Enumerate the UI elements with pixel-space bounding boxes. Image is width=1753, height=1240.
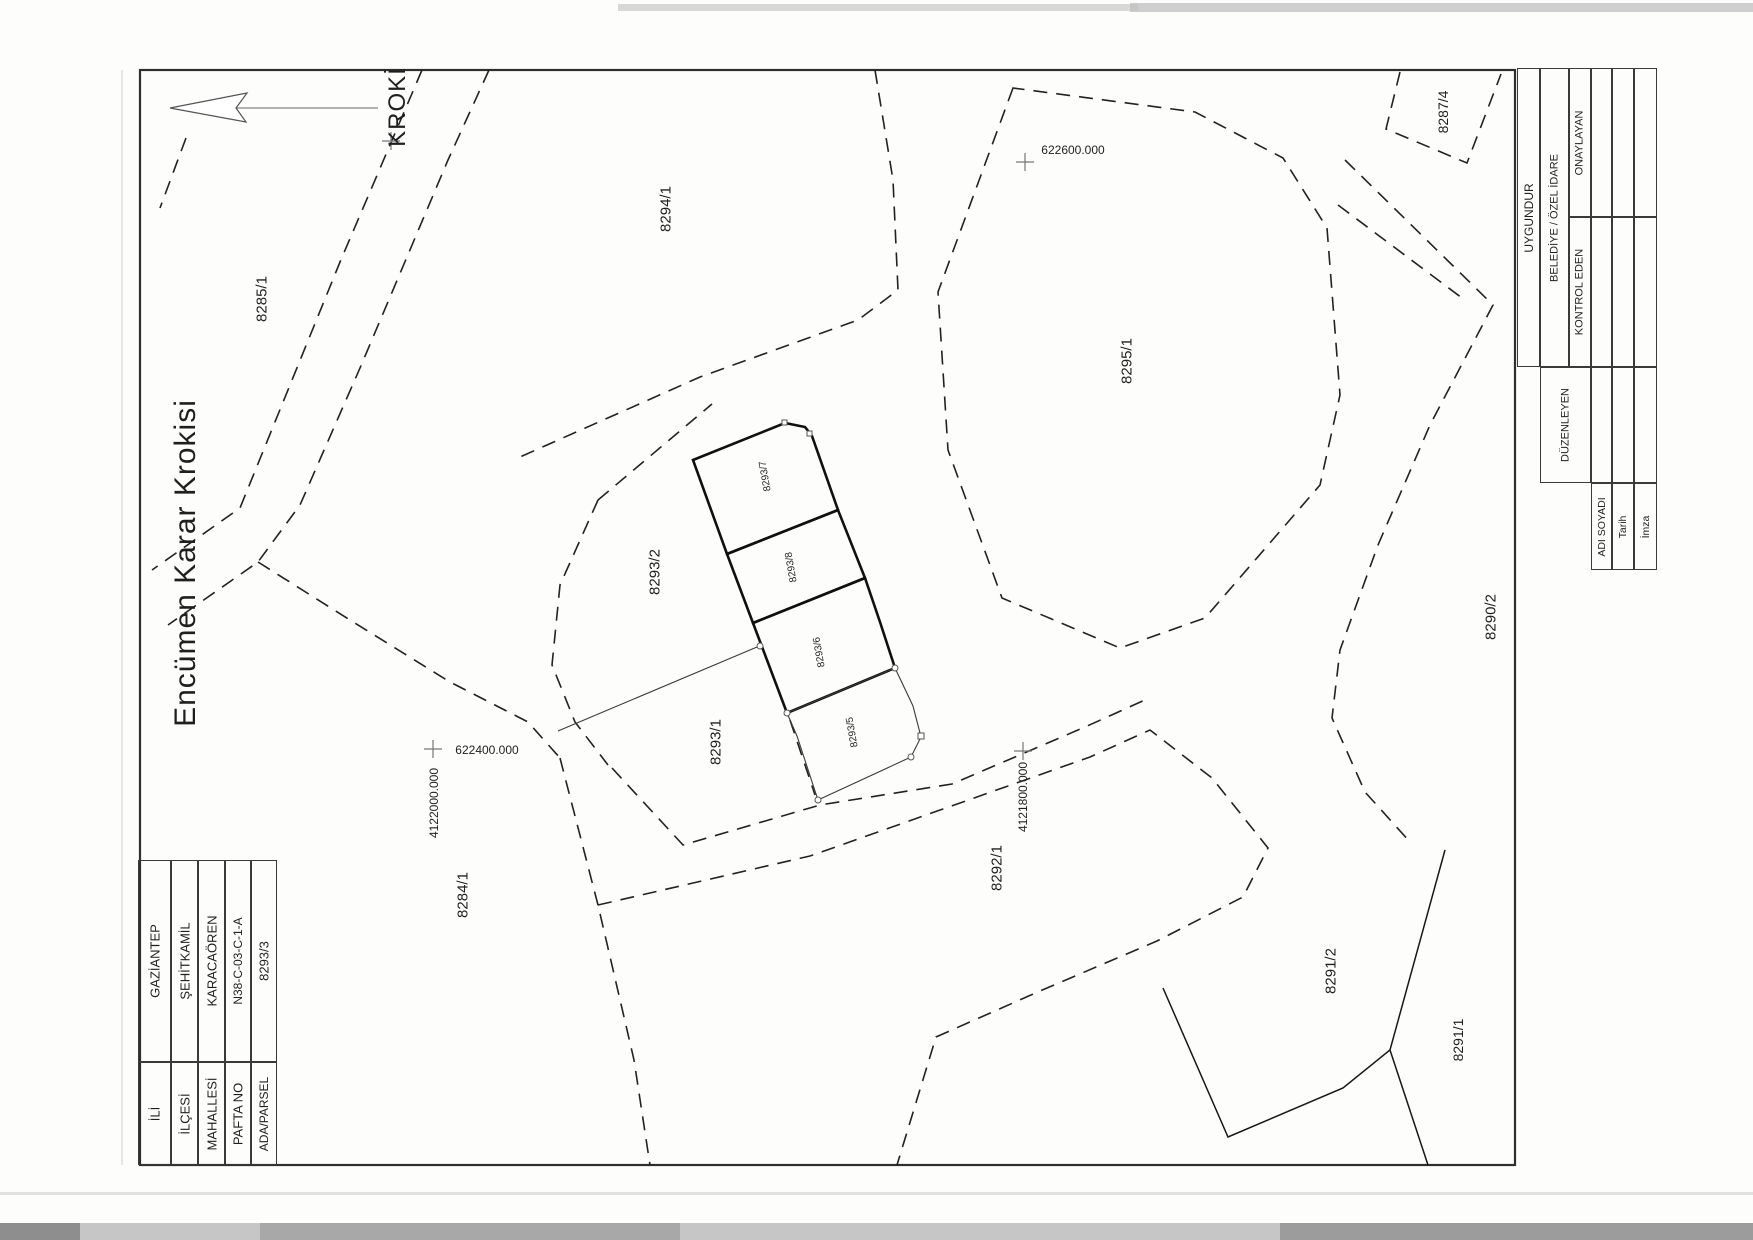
survey-point-marker bbox=[757, 643, 763, 649]
scanned-cadastral-sketch: Encümen Karar Krokisi KROKİ 8285/1 8294/… bbox=[0, 0, 1753, 1240]
scan-artifact bbox=[1130, 3, 1753, 12]
parcel-8291-1-boundary bbox=[1390, 1050, 1428, 1165]
road-boundary-northeast bbox=[1338, 205, 1462, 298]
parcel-8293-1-east-boundary bbox=[790, 720, 815, 795]
signature-cell-empty bbox=[1612, 217, 1634, 367]
parcel-label-8291-1: 8291/1 bbox=[1451, 1019, 1465, 1062]
road-boundary-topleft-corner bbox=[160, 138, 186, 208]
survey-point-marker bbox=[784, 710, 790, 716]
approval-role-duzenleyen: DÜZENLEYEN bbox=[1540, 367, 1591, 483]
scan-artifact bbox=[260, 1223, 680, 1240]
info-value-mahallesi: KARACAÖREN bbox=[198, 860, 225, 1062]
info-label-ada-parsel: ADA/PARSEL bbox=[251, 1062, 277, 1165]
parcel-label-8294-1: 8294/1 bbox=[659, 186, 674, 232]
parcel-label-8287-4: 8287/4 bbox=[1436, 91, 1450, 134]
scan-artifact bbox=[0, 1223, 80, 1240]
survey-point-marker bbox=[892, 665, 898, 671]
parcel-label-8285-1: 8285/1 bbox=[255, 276, 270, 322]
road-boundary-west bbox=[168, 70, 489, 625]
page-title: Encümen Karar Krokisi bbox=[171, 399, 201, 727]
info-label-mahallesi: MAHALLESİ bbox=[198, 1062, 225, 1165]
signature-cell-empty bbox=[1634, 217, 1657, 367]
parcel-8292-1-boundary bbox=[598, 730, 1268, 1165]
parcel-8294-1-boundary bbox=[520, 70, 898, 457]
survey-point-marker bbox=[908, 754, 914, 760]
parcel-label-8291-2: 8291/2 bbox=[1324, 948, 1339, 994]
parcel-label-8284-1: 8284/1 bbox=[456, 872, 471, 918]
signature-cell-empty bbox=[1634, 68, 1657, 217]
signature-cell-empty bbox=[1612, 68, 1634, 217]
scan-artifact bbox=[618, 4, 1138, 11]
scan-artifact bbox=[0, 1192, 1753, 1195]
signature-cell-empty bbox=[1612, 367, 1634, 483]
survey-point-marker bbox=[918, 733, 924, 739]
parcel-label-8292-1: 8292/1 bbox=[990, 845, 1005, 891]
scan-artifact bbox=[121, 70, 123, 1165]
survey-point-marker bbox=[807, 431, 812, 436]
grid-cross bbox=[1016, 153, 1034, 171]
grid-cross bbox=[1014, 742, 1032, 760]
signature-cell-empty bbox=[1591, 367, 1612, 483]
signature-cell-empty bbox=[1634, 367, 1657, 483]
survey-point-marker bbox=[782, 420, 787, 425]
parcel-8293-2-north-boundary bbox=[598, 404, 712, 500]
parcel-8284-1-north-boundary bbox=[258, 562, 560, 758]
info-value-ada-parsel: 8293/3 bbox=[251, 860, 277, 1062]
approval-row-tarih: Tarih bbox=[1612, 483, 1634, 570]
parcel-label-8293-1: 8293/1 bbox=[709, 719, 724, 765]
parcel-8293-block-west-boundary bbox=[552, 500, 608, 765]
info-value-ilcesi: ŞEHİTKAMİL bbox=[171, 860, 198, 1062]
info-label-ilcesi: İLÇESİ bbox=[171, 1062, 198, 1165]
parcel-label-8295-1: 8295/1 bbox=[1120, 338, 1135, 384]
info-value-pafta-no: N38-C-03-C-1-A bbox=[225, 860, 251, 1062]
approval-row-adi-soyadi: ADI SOYADI bbox=[1591, 483, 1612, 570]
signature-cell-empty bbox=[1591, 217, 1612, 367]
approval-row-imza: İmza bbox=[1634, 483, 1657, 570]
parcel-8295-1-boundary bbox=[938, 88, 1340, 648]
info-label-pafta-no: PAFTA NO bbox=[225, 1062, 251, 1165]
survey-point-marker bbox=[815, 797, 821, 803]
approval-role-onaylayan: ONAYLAYAN bbox=[1569, 68, 1591, 217]
signature-cell-empty bbox=[1591, 68, 1612, 217]
map-heading: KROKİ bbox=[386, 67, 410, 147]
scan-artifact bbox=[0, 1223, 1753, 1240]
parcel-8284-1-east-boundary bbox=[560, 758, 650, 1165]
parcel-label-8293-2: 8293/2 bbox=[648, 549, 663, 595]
parcel-8290-2-boundary bbox=[1332, 160, 1493, 842]
parcel-8291-2-boundary bbox=[1163, 850, 1445, 1137]
approval-role-kontrol-eden: KONTROL EDEN bbox=[1569, 217, 1591, 367]
parcel-label-8290-2: 8290/2 bbox=[1484, 594, 1499, 640]
approval-authority-cell: BELEDİYE / ÖZEL İDARE bbox=[1540, 68, 1569, 367]
approval-header-cell: UYGUNDUR bbox=[1517, 68, 1540, 367]
grid-label-easting-622600: 622600.000 bbox=[1041, 144, 1104, 156]
grid-cross bbox=[424, 740, 442, 758]
north-arrow-icon bbox=[170, 93, 378, 122]
grid-label-easting-622400: 622400.000 bbox=[455, 744, 518, 756]
parcel-8293-1-north-boundary bbox=[558, 647, 757, 731]
grid-label-northing-4121800: 4121800.000 bbox=[1017, 762, 1029, 832]
info-label-ili: İLİ bbox=[138, 1062, 171, 1165]
scan-artifact bbox=[1280, 1223, 1753, 1240]
grid-label-northing-4122000: 4122000.000 bbox=[428, 768, 440, 838]
info-value-ili: GAZİANTEP bbox=[138, 860, 171, 1062]
